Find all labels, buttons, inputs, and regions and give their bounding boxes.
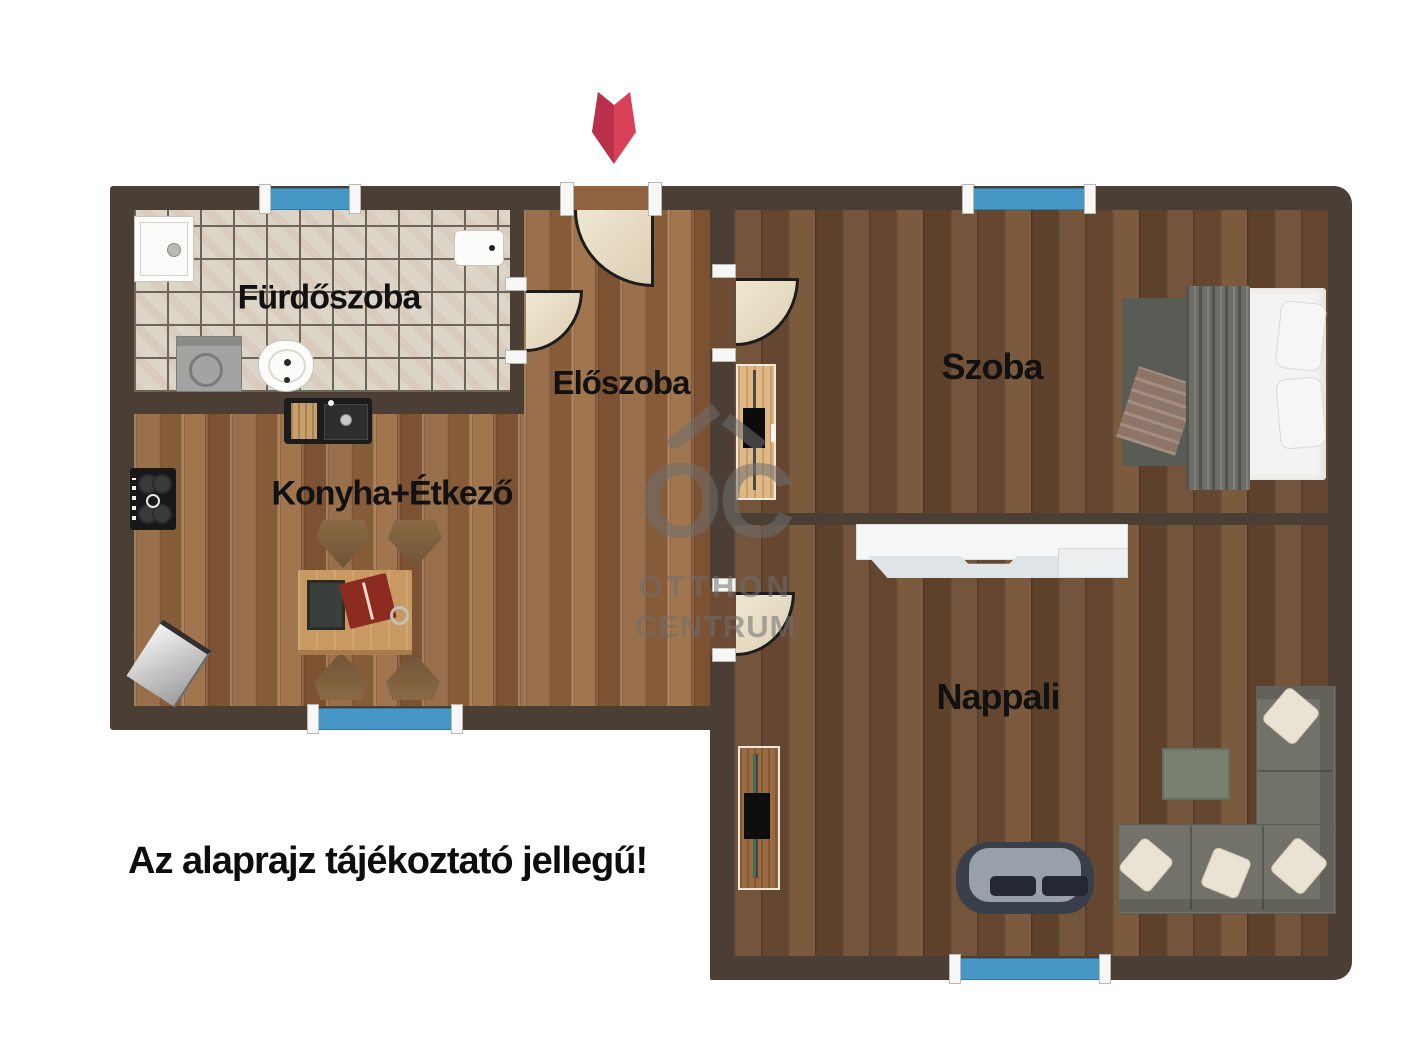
stand-handle (771, 424, 776, 442)
bathroom-window (268, 188, 352, 210)
sideboard-step (1058, 548, 1128, 578)
faucet (340, 414, 352, 426)
loveseat (956, 842, 1094, 914)
corner-sofa (1118, 686, 1334, 914)
faucet-knob (328, 400, 334, 406)
label-living: Nappali (936, 676, 1059, 718)
toilet-hinge (284, 377, 290, 383)
basin-drain (489, 245, 495, 251)
hallway-floor (524, 210, 710, 706)
window-jamb (307, 704, 319, 734)
door-jamb (712, 264, 736, 278)
bedroom-door-opening (710, 278, 734, 350)
disclaimer-text: Az alaprajz tájékoztató jellegű! (128, 840, 647, 883)
living-window (958, 958, 1102, 980)
door-jamb (712, 648, 736, 662)
window-jamb (259, 184, 271, 214)
washbasin (454, 230, 504, 266)
pillow (1275, 300, 1328, 372)
cutting-board (291, 403, 317, 439)
label-bathroom: Fürdőszoba (238, 279, 421, 318)
window-jamb (1099, 954, 1111, 984)
bed-runner (1186, 286, 1250, 490)
stove-center-knob (146, 494, 160, 508)
kitchen-window (316, 708, 454, 730)
door-jamb (560, 182, 574, 216)
entrance-arrow-icon (592, 92, 636, 164)
shower-tray (134, 216, 194, 282)
washer-panel (177, 337, 241, 346)
open-book (339, 573, 397, 629)
window-jamb (949, 954, 961, 984)
window-jamb (349, 184, 361, 214)
living-tv (744, 793, 770, 839)
label-hallway: Előszoba (553, 364, 690, 402)
sofa-seam (1258, 770, 1332, 772)
loveseat-cushion (990, 876, 1036, 896)
burner (152, 474, 172, 494)
toilet-drain (284, 359, 291, 366)
sofa-back-right (1320, 686, 1334, 912)
bedroom-window (971, 188, 1087, 210)
entrance-opening (572, 186, 650, 210)
label-bedroom: Szoba (941, 346, 1042, 388)
living-door-opening (710, 588, 734, 655)
door-jamb (505, 277, 527, 291)
washer-door (189, 353, 223, 387)
window-jamb (962, 184, 974, 214)
kitchen-sink (284, 398, 372, 444)
loveseat-cushion (1042, 876, 1088, 896)
door-jamb (505, 350, 527, 364)
bedroom-tv (743, 408, 765, 448)
floor-plan: OC OTTHON CENTRUM Fürdőszoba Előszoba Ko… (0, 0, 1420, 1060)
window-jamb (451, 704, 463, 734)
dining-table (298, 570, 412, 655)
sofa-seam (1262, 826, 1264, 910)
book-spine (362, 582, 374, 620)
door-jamb (712, 348, 736, 362)
door-jamb (712, 578, 736, 592)
window-jamb (1084, 184, 1096, 214)
shower-drain (167, 243, 181, 257)
door-jamb (648, 182, 662, 216)
pillow (1275, 376, 1327, 450)
double-bed (1122, 286, 1328, 492)
glass (390, 606, 409, 625)
sofa-seam (1190, 826, 1192, 910)
living-tv-cabinet (738, 746, 780, 890)
washing-machine (176, 336, 242, 392)
coffee-table (1162, 748, 1230, 800)
bedroom-tv-stand (736, 364, 776, 500)
toilet (258, 340, 314, 392)
stove (130, 468, 176, 530)
sofa-back-bottom (1118, 899, 1334, 912)
label-kitchen: Konyha+Étkező (271, 475, 512, 514)
stove-knobs (132, 478, 136, 520)
